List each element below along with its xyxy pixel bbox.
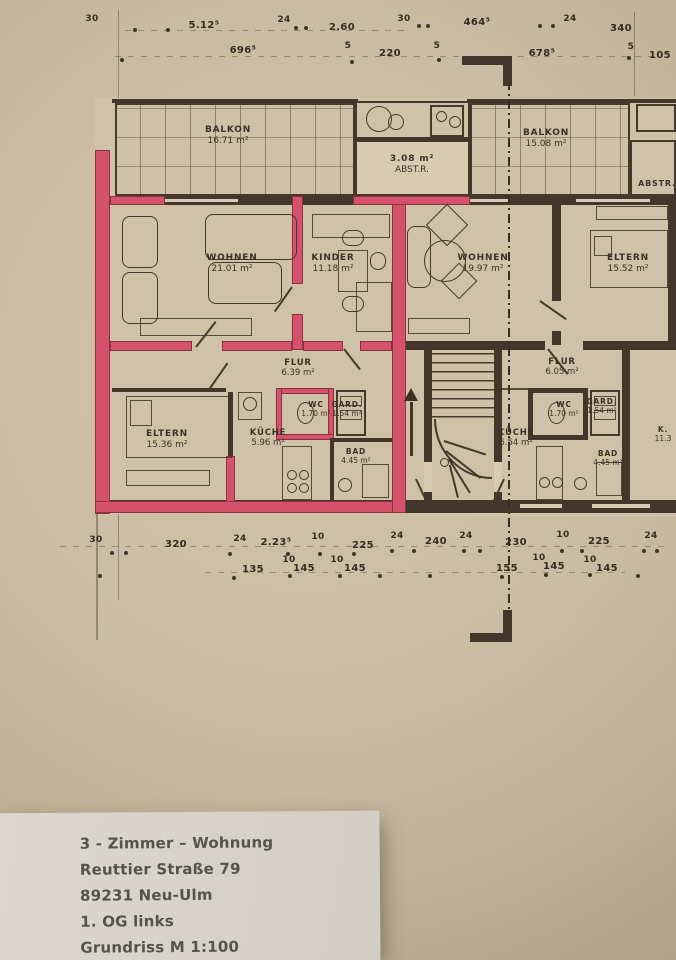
plant: [388, 114, 404, 130]
wall: [406, 341, 545, 350]
room-label-kind-right-cut: K.11.3: [655, 425, 672, 443]
dimension-bottom: 240: [425, 536, 447, 547]
dimension-bottom: 30: [89, 535, 102, 545]
wall: [552, 331, 561, 345]
kitchen-counter: [536, 446, 563, 500]
burner: [299, 470, 309, 480]
dimension-bottom: 24: [644, 531, 657, 541]
room-label-line: ELTERN: [607, 253, 649, 264]
room-label-line: 1.54 m²: [332, 409, 363, 418]
dimension-bottom: 155: [496, 563, 518, 574]
room-label-line: BAD: [341, 447, 370, 456]
room-label-line: GARD.: [332, 400, 363, 409]
wall-highlighted: [222, 341, 292, 351]
window: [520, 503, 562, 509]
arrow-shaft: [410, 402, 413, 456]
burner: [552, 477, 563, 488]
dimension-line: [205, 572, 625, 573]
dimension-bottom: 145: [293, 563, 315, 574]
dimension-bottom: 225: [588, 536, 610, 547]
dimension-top: 2.60: [329, 22, 355, 33]
dimension-tick: [133, 28, 137, 32]
room-label-gard-left: GARD.1.54 m²: [332, 400, 363, 418]
wall: [353, 137, 472, 142]
address-line: 3 - Zimmer – Wohnung: [80, 833, 274, 852]
room-label-line: 15.36 m²: [146, 440, 188, 451]
room-label-line: 1.70 m²: [549, 409, 578, 418]
room-label-line: 6.54 m²: [498, 438, 535, 448]
dimension-bottom: 10: [556, 530, 569, 540]
dimension-tick: [500, 575, 504, 579]
axis-bracket: [470, 633, 512, 642]
wall-highlighted: [276, 388, 334, 394]
address-line: 1. OG links: [80, 912, 174, 931]
wall-outline: [115, 103, 355, 196]
axis-bracket: [503, 56, 512, 86]
room-label-line: BAD: [593, 449, 622, 458]
room-label-line: 19.97 m²: [457, 264, 508, 275]
burner: [287, 483, 297, 493]
dimension-top: 24: [277, 15, 290, 25]
dimension-tick: [350, 60, 354, 64]
dimension-bottom: 225: [352, 540, 374, 551]
room-label-eltern-right: ELTERN15.52 m²: [607, 253, 649, 275]
wardrobe: [596, 206, 668, 220]
room-label-line: 6.39 m²: [281, 368, 314, 378]
dimension-tick: [110, 551, 114, 555]
room-label-gard-right: GARD.1.54 m²: [587, 397, 618, 415]
room-label-line: 1.54 m²: [587, 406, 618, 415]
room-label-eltern-left: ELTERN15.36 m²: [146, 429, 188, 451]
burner: [287, 470, 297, 480]
dimension-tick: [390, 549, 394, 553]
room-label-line: WC: [301, 400, 330, 409]
wall: [552, 205, 561, 301]
mirror-axis: [508, 62, 510, 642]
dimension-tick: [232, 576, 236, 580]
sideboard: [408, 318, 470, 334]
bathtub: [596, 462, 622, 496]
room-label-line: ABST.R.: [390, 165, 434, 176]
bathtub: [362, 464, 389, 498]
wall: [626, 99, 676, 103]
dimension-top: 220: [379, 48, 401, 59]
dimension-tick: [294, 26, 298, 30]
sideboard: [140, 318, 252, 336]
dimension-tick: [627, 56, 631, 60]
room-label-line: WOHNEN: [457, 253, 508, 264]
dimension-tick: [412, 549, 416, 553]
dimension-tick: [352, 552, 356, 556]
dimension-tick: [580, 549, 584, 553]
room-label-kueche-right: KÜCHE6.54 m²: [498, 428, 535, 448]
room-label-line: ELTERN: [146, 429, 188, 440]
room-label-line: WOHNEN: [206, 253, 257, 264]
room-label-kinder: KINDER11.18 m²: [311, 253, 354, 275]
dimension-top: 464⁵: [464, 17, 491, 28]
dimension-tick: [428, 574, 432, 578]
dimension-tick: [478, 549, 482, 553]
dimension-bottom: 24: [233, 534, 246, 544]
dimension-bottom: 24: [459, 531, 472, 541]
wall-highlighted: [392, 196, 406, 513]
fixture-circle: [440, 458, 449, 467]
balcony-edge: [467, 99, 633, 103]
room-label-line: KÜCHE: [498, 428, 535, 438]
address-line: Grundriss M 1:100: [80, 938, 239, 957]
wall: [583, 341, 676, 350]
wall-highlighted: [226, 456, 235, 502]
dimension-top: 678⁵: [529, 48, 556, 59]
room-label-abstellraum-neighbor: ABSTR.: [638, 179, 676, 189]
dimension-top: 5: [345, 41, 352, 51]
dimension-top: 24: [563, 14, 576, 24]
wall: [668, 205, 676, 341]
wall-highlighted: [110, 196, 165, 205]
stair-treads: [432, 353, 494, 419]
dimension-bottom: 135: [242, 564, 264, 575]
dimension-tick: [655, 549, 659, 553]
room-label-wc-left: WC1.70 m²: [301, 400, 330, 418]
address-line: Reuttier Straße 79: [80, 860, 241, 879]
burner: [539, 477, 550, 488]
sofa: [407, 226, 431, 288]
room-label-line: 4.45 m²: [341, 456, 370, 465]
room-label-balkon-right: BALKON15.08 m²: [523, 128, 569, 150]
window: [592, 503, 650, 509]
dimension-top: 105: [649, 50, 671, 61]
room-fill: [424, 462, 432, 492]
room-label-line: WC: [549, 400, 578, 409]
room-label-abstellraum: 3.08 m²ABST.R.: [390, 154, 434, 176]
room-label-flur-left: FLUR6.39 m²: [281, 358, 314, 378]
guide-line: [118, 10, 119, 98]
dimension-tick: [288, 574, 292, 578]
dimension-bottom: 145: [344, 563, 366, 574]
room-label-balkon-left: BALKON16.71 m²: [205, 125, 251, 147]
room-label-line: 3.08 m²: [390, 154, 434, 165]
wall: [330, 440, 334, 500]
room-label-line: 21.01 m²: [206, 264, 257, 275]
dimension-tick: [124, 551, 128, 555]
burner: [299, 483, 309, 493]
arrow-head: [404, 388, 418, 401]
dimension-bottom: 24: [390, 531, 403, 541]
room-label-flur-right: FLUR6.05 m²: [545, 357, 578, 377]
dimension-bottom: 10: [330, 555, 343, 565]
dimension-tick: [228, 552, 232, 556]
dimension-top: 5: [628, 42, 635, 52]
room-label-kueche-left: KÜCHE5.96 m²: [250, 428, 287, 448]
wall: [622, 350, 630, 501]
wardrobe: [126, 470, 210, 486]
room-label-line: BALKON: [523, 128, 569, 139]
room-label-bad-right: BAD4.45 m²: [593, 449, 622, 467]
fixture-outline: [500, 388, 530, 390]
armchair: [122, 272, 158, 324]
dimension-tick: [318, 552, 322, 556]
dimension-top: 30: [397, 14, 410, 24]
window: [576, 198, 650, 203]
room-label-line: 11.18 m²: [311, 264, 354, 275]
room-label-line: 6.05 m²: [545, 367, 578, 377]
sink: [574, 477, 587, 490]
dimension-tick: [98, 574, 102, 578]
guide-line: [634, 12, 635, 96]
dimension-tick: [560, 549, 564, 553]
scanned-floorplan-photo: BALKON16.71 m²3.08 m²ABST.R.BALKON15.08 …: [0, 0, 676, 960]
wall-highlighted: [292, 314, 303, 350]
dimension-tick: [437, 58, 441, 62]
room-label-line: KINDER: [311, 253, 354, 264]
wall-highlighted: [360, 341, 392, 351]
dimension-tick: [636, 574, 640, 578]
dimension-tick: [426, 24, 430, 28]
room-label-wohnen-left: WOHNEN21.01 m²: [206, 253, 257, 275]
dimension-tick: [166, 28, 170, 32]
room-label-line: K.: [655, 425, 672, 434]
room-label-line: 11.3: [655, 434, 672, 443]
dimension-tick: [304, 26, 308, 30]
dimension-top: 340: [610, 23, 632, 34]
wall-highlighted: [353, 196, 470, 205]
dimension-tick: [120, 58, 124, 62]
room-label-bad-left: BAD4.45 m²: [341, 447, 370, 465]
dimension-tick: [338, 574, 342, 578]
wall: [528, 435, 588, 440]
room-label-line: ABSTR.: [638, 179, 676, 189]
chair: [370, 252, 386, 270]
room-label-line: 16.71 m²: [205, 136, 251, 147]
address-paper: 3 - Zimmer – Wohnung Reuttier Straße 79 …: [0, 811, 381, 960]
dimension-top: 30: [85, 14, 98, 24]
room-label-line: 15.08 m²: [523, 139, 569, 150]
pillow: [130, 400, 152, 426]
wall-highlighted: [95, 501, 406, 513]
room-label-line: KÜCHE: [250, 428, 287, 438]
dimension-top: 5.12⁵: [188, 20, 219, 31]
dimension-tick: [544, 573, 548, 577]
room-label-line: 15.52 m²: [607, 264, 649, 275]
dimension-bottom: 145: [543, 561, 565, 572]
dimension-tick: [462, 549, 466, 553]
sink: [338, 478, 352, 492]
dimension-bottom: 2.23⁵: [260, 537, 291, 548]
plant: [436, 111, 447, 122]
room-label-line: 5.96 m²: [250, 438, 287, 448]
wall-highlighted: [303, 341, 343, 351]
dimension-tick: [642, 549, 646, 553]
dimension-bottom: 10: [311, 532, 324, 542]
dimension-top: 696⁵: [230, 45, 257, 56]
balcony-edge: [112, 99, 358, 103]
wall: [330, 438, 392, 442]
guide-line: [118, 514, 119, 600]
dimension-tick: [538, 24, 542, 28]
plant: [449, 116, 461, 128]
wall: [528, 388, 588, 393]
dimension-tick: [588, 573, 592, 577]
dimension-bottom: 320: [165, 539, 187, 550]
room-label-line: 1.70 m²: [301, 409, 330, 418]
armchair: [122, 216, 158, 268]
wall-outline: [636, 104, 676, 132]
room-label-line: FLUR: [545, 357, 578, 367]
bed: [312, 214, 390, 238]
dimension-tick: [378, 574, 382, 578]
wall-highlighted: [110, 341, 192, 351]
dimension-tick: [417, 24, 421, 28]
wall-highlighted: [95, 150, 110, 514]
desk: [356, 282, 392, 332]
address-line: 89231 Neu-Ulm: [80, 886, 213, 905]
room-label-line: FLUR: [281, 358, 314, 368]
dimension-top: 5: [434, 41, 441, 51]
room-label-line: GARD.: [587, 397, 618, 406]
dimension-bottom: 145: [596, 563, 618, 574]
room-label-line: BALKON: [205, 125, 251, 136]
room-label-wc-right: WC1.70 m²: [549, 400, 578, 418]
dimension-bottom: 10: [583, 555, 596, 565]
room-label-line: 4.45 m²: [593, 458, 622, 467]
sink: [243, 397, 257, 411]
room-label-wohnen-right: WOHNEN19.97 m²: [457, 253, 508, 275]
dimension-tick: [551, 24, 555, 28]
dimension-bottom: 230: [505, 537, 527, 548]
